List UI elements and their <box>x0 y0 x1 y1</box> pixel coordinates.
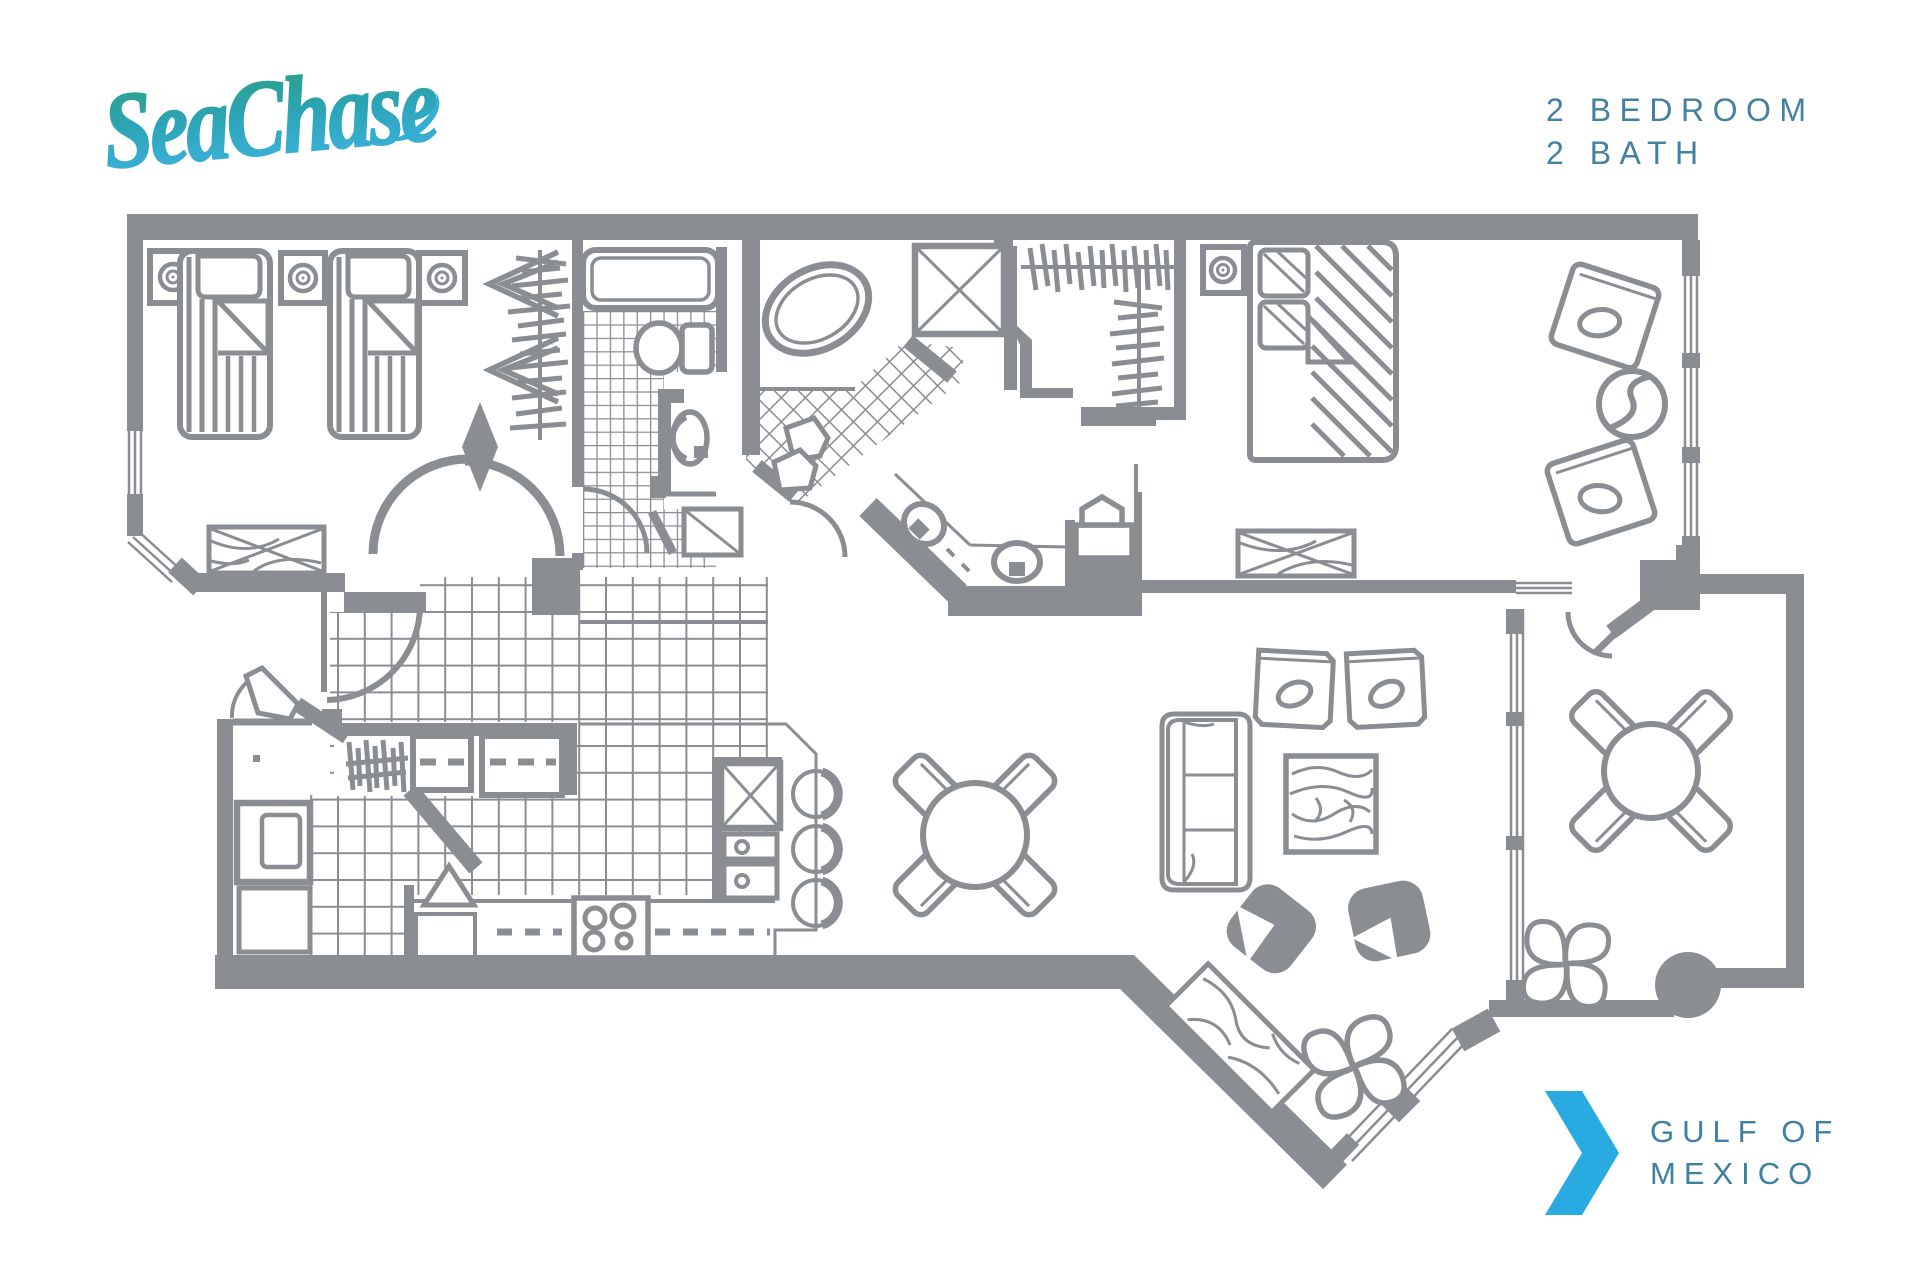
svg-text:MEXICO: MEXICO <box>1650 1156 1820 1191</box>
svg-text:2 BATH: 2 BATH <box>1546 135 1707 171</box>
svg-text:GULF OF: GULF OF <box>1650 1114 1840 1149</box>
svg-text:2 BEDROOM: 2 BEDROOM <box>1546 92 1815 128</box>
